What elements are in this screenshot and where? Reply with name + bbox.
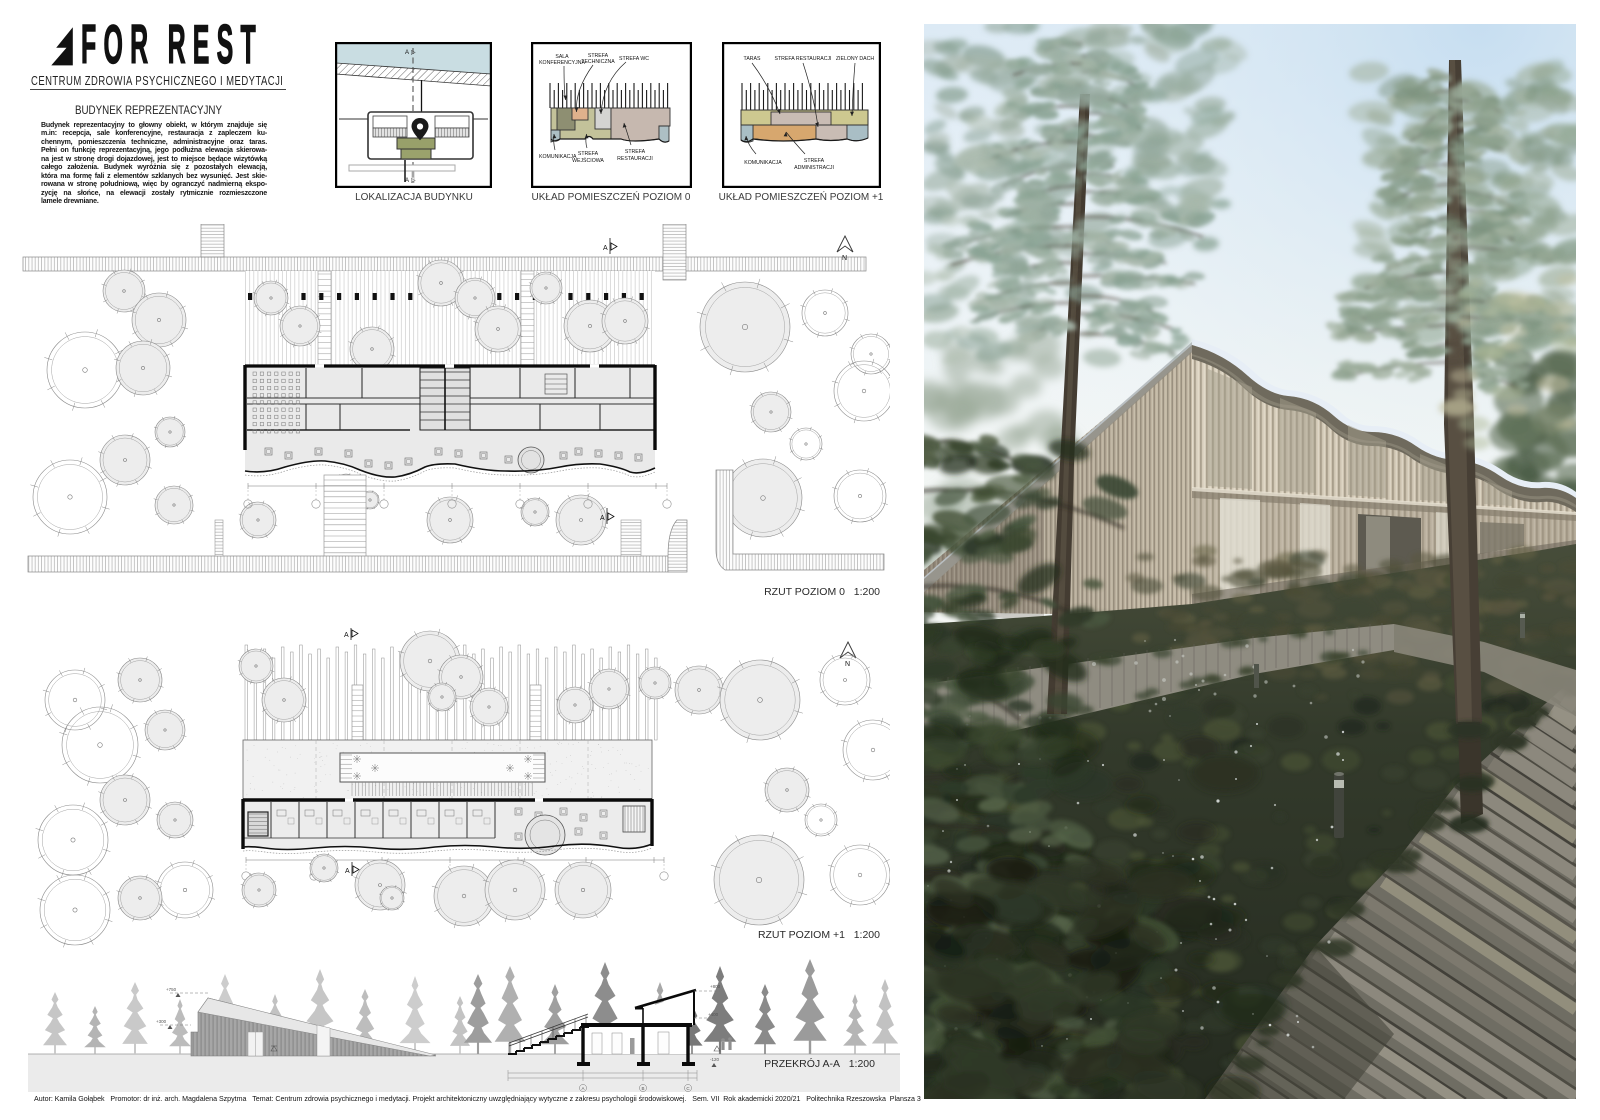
svg-text:N: N <box>842 255 847 262</box>
svg-text:A: A <box>405 50 409 56</box>
svg-text:STREFA: STREFA <box>804 158 825 164</box>
svg-text:A: A <box>345 868 350 875</box>
svg-text:ADMINISTRACJI: ADMINISTRACJI <box>794 165 834 171</box>
svg-text:B: B <box>641 1086 644 1091</box>
svg-text:A: A <box>600 515 605 522</box>
svg-text:+300: +300 <box>156 1019 167 1024</box>
svg-text:+750: +750 <box>166 987 177 992</box>
svg-text:A: A <box>603 245 608 252</box>
svg-text:KOMUNIKACJA: KOMUNIKACJA <box>744 160 782 166</box>
svg-text:▷: ▷ <box>411 50 416 56</box>
svg-text:A: A <box>581 1086 584 1091</box>
svg-text:STREFA WC: STREFA WC <box>619 56 649 62</box>
svg-text:+800: +800 <box>710 984 721 989</box>
svg-text:N: N <box>845 661 850 668</box>
svg-text:KONFERENCYJNA: KONFERENCYJNA <box>539 60 585 66</box>
svg-text:TARAS: TARAS <box>744 56 761 62</box>
svg-text:WEJŚCIOWA: WEJŚCIOWA <box>572 156 604 164</box>
svg-text:RESTAURACJI: RESTAURACJI <box>617 156 653 162</box>
svg-text:+400: +400 <box>708 1012 719 1017</box>
svg-text:ZIELONY DACH: ZIELONY DACH <box>836 56 874 62</box>
svg-text:STREFA: STREFA <box>578 151 599 157</box>
svg-text:A: A <box>344 632 349 639</box>
svg-text:TECHNICZNA: TECHNICZNA <box>581 59 615 65</box>
svg-text:STREFA RESTAURACJI: STREFA RESTAURACJI <box>775 56 832 62</box>
svg-text:STREFA: STREFA <box>625 149 646 155</box>
